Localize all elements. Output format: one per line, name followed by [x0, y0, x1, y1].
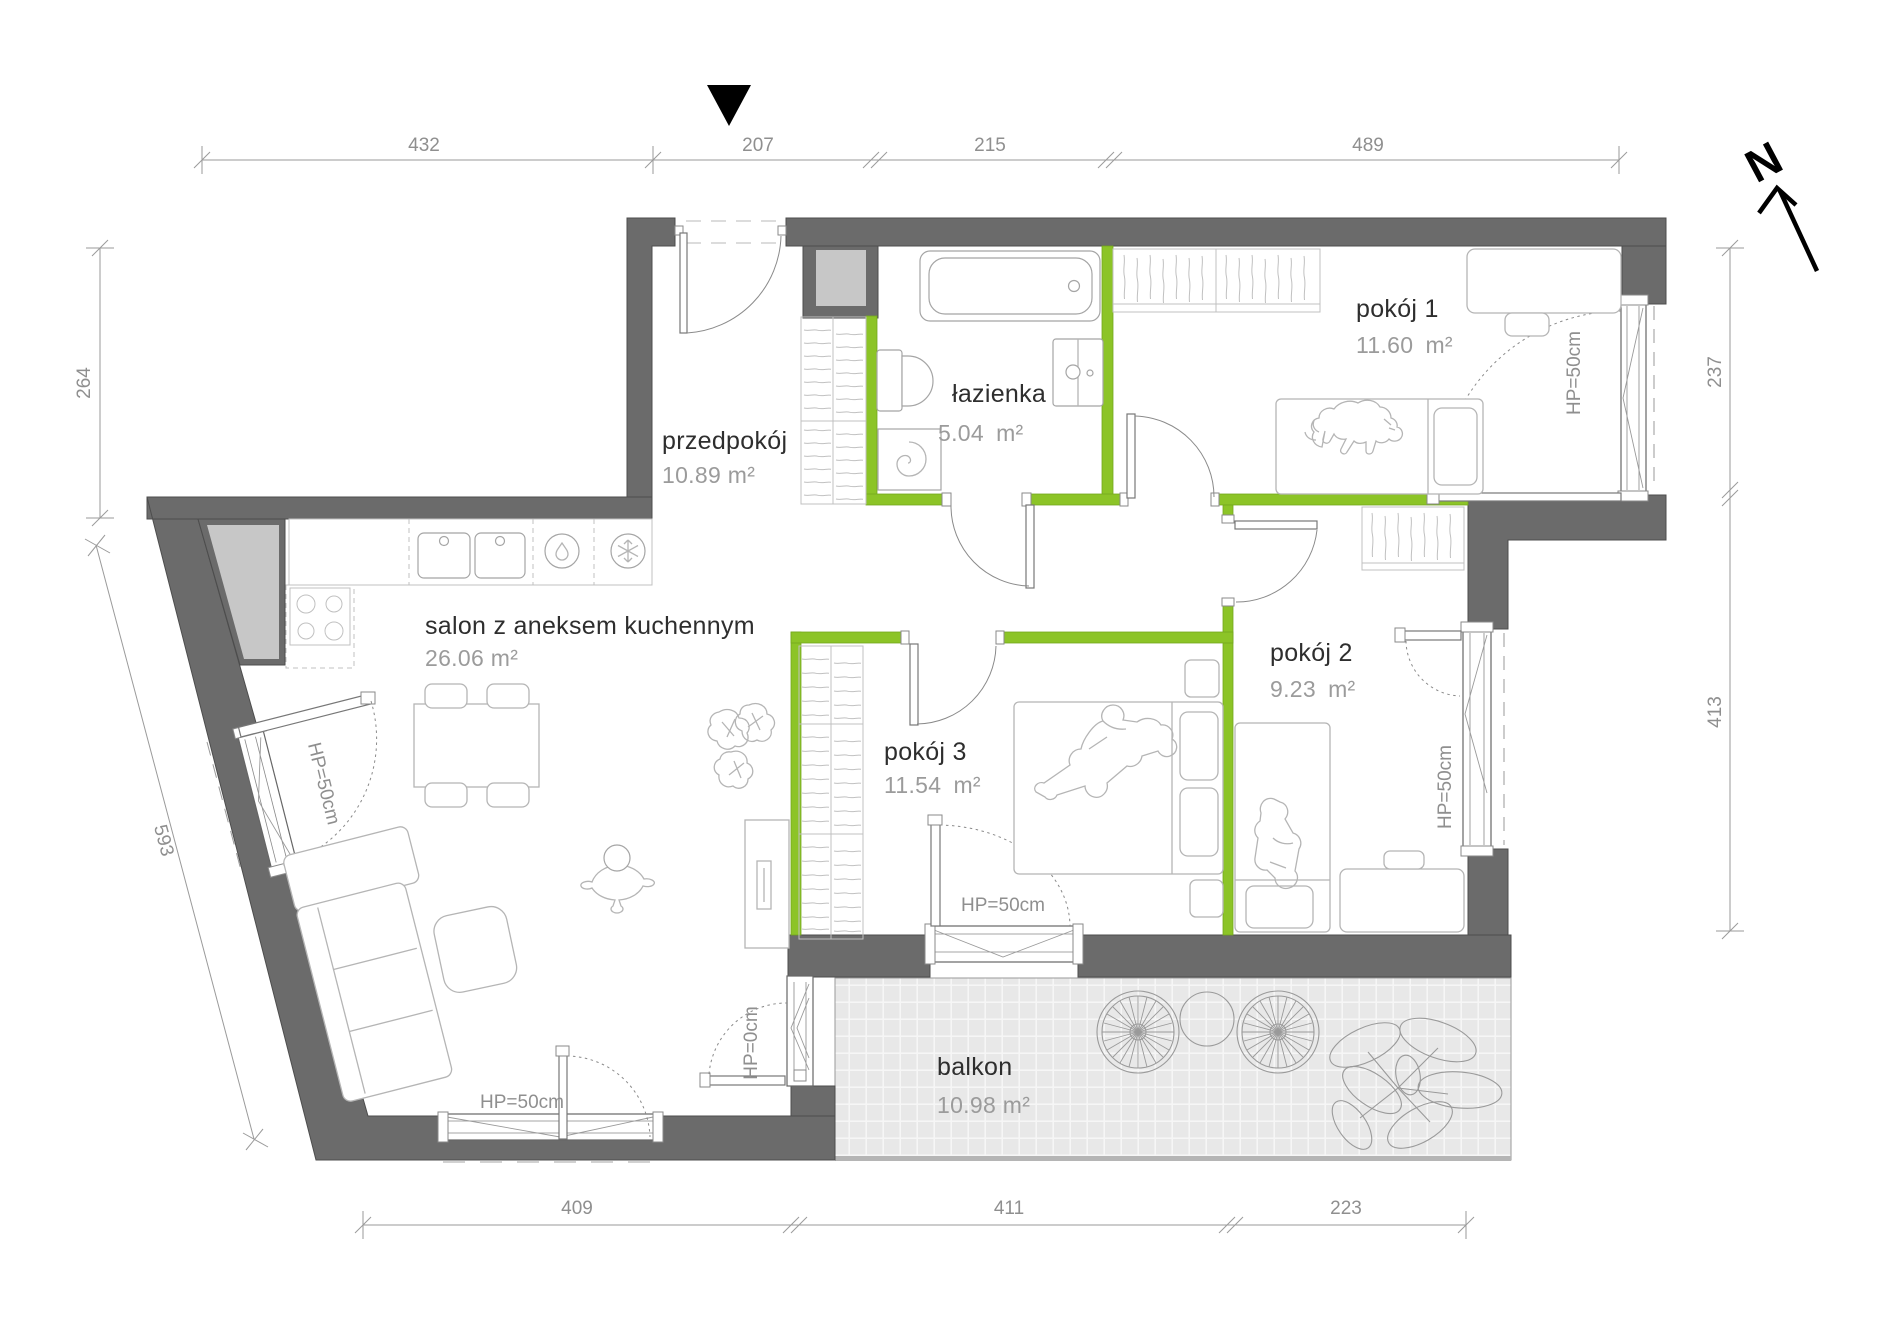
svg-text:5.04 m²: 5.04 m² [938, 420, 1024, 446]
svg-text:przedpokój: przedpokój [662, 427, 787, 455]
svg-text:26.06 m²: 26.06 m² [425, 645, 518, 671]
svg-text:11.60 m²: 11.60 m² [1356, 332, 1453, 358]
svg-text:11.54 m²: 11.54 m² [884, 772, 981, 798]
svg-text:207: 207 [742, 135, 774, 156]
svg-text:10.98 m²: 10.98 m² [937, 1092, 1030, 1118]
svg-text:HP=50cm: HP=50cm [480, 1092, 564, 1113]
svg-text:264: 264 [74, 367, 95, 399]
svg-text:łazienka: łazienka [952, 380, 1046, 408]
svg-text:409: 409 [561, 1198, 593, 1219]
svg-text:9.23 m²: 9.23 m² [1270, 676, 1356, 702]
svg-text:salon z aneksem kuchennym: salon z aneksem kuchennym [425, 612, 755, 640]
svg-text:223: 223 [1330, 1198, 1362, 1219]
svg-text:411: 411 [994, 1198, 1024, 1219]
svg-text:HP=50cm: HP=50cm [1435, 745, 1456, 829]
svg-text:432: 432 [408, 135, 440, 156]
svg-text:489: 489 [1352, 135, 1384, 156]
svg-text:10.89 m²: 10.89 m² [662, 462, 755, 488]
svg-text:pokój 3: pokój 3 [884, 738, 967, 766]
svg-text:237: 237 [1705, 356, 1726, 388]
svg-text:HP=50cm: HP=50cm [1564, 331, 1585, 415]
svg-text:215: 215 [974, 135, 1006, 156]
svg-text:HP=0cm: HP=0cm [741, 1006, 762, 1079]
svg-text:balkon: balkon [937, 1053, 1012, 1081]
svg-text:413: 413 [1705, 696, 1726, 728]
svg-text:HP=50cm: HP=50cm [961, 895, 1045, 916]
svg-text:pokój 2: pokój 2 [1270, 639, 1353, 667]
svg-text:pokój 1: pokój 1 [1356, 295, 1439, 323]
